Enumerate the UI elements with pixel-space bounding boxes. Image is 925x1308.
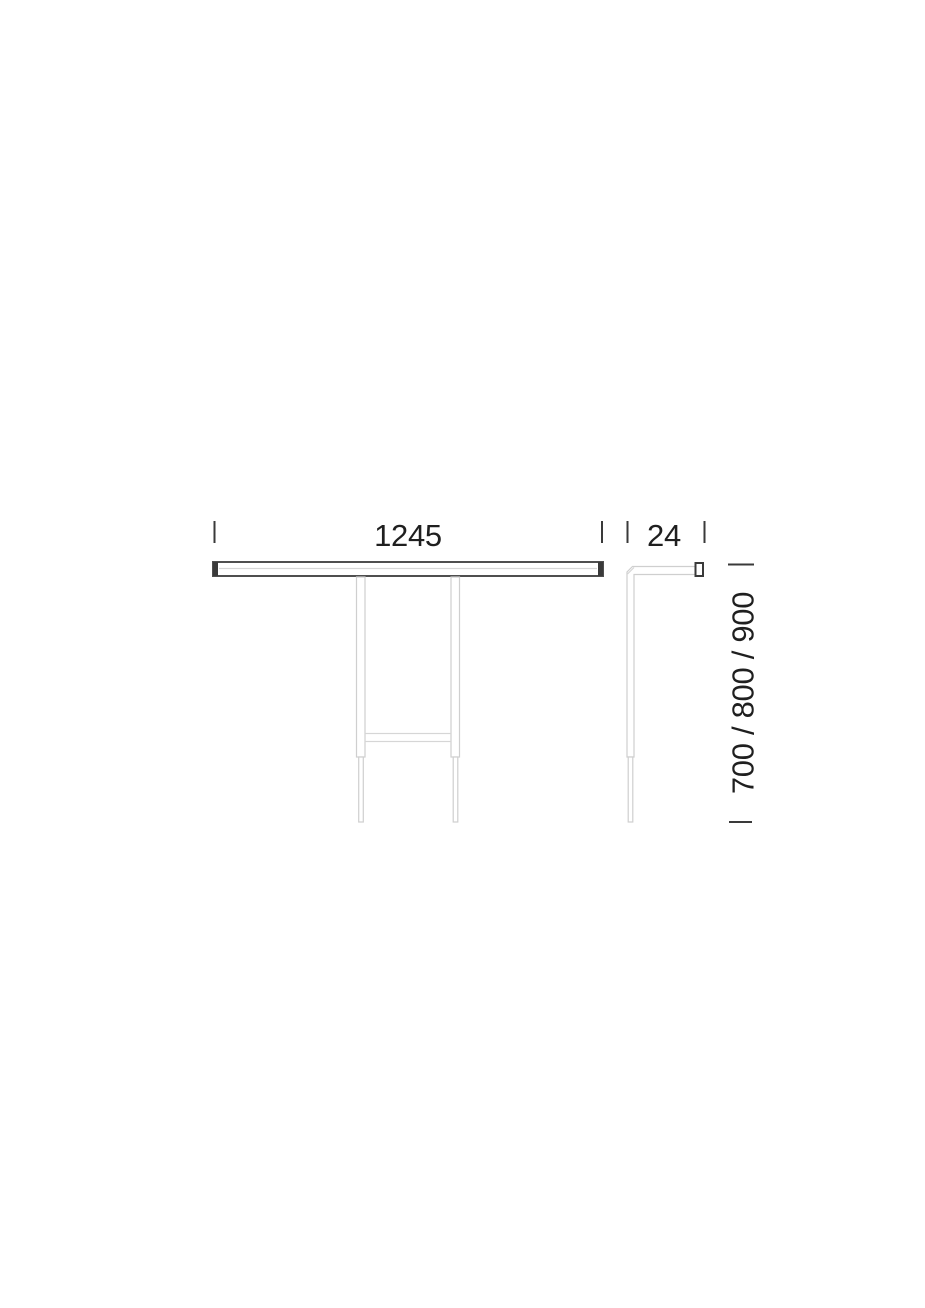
front-tabletop-end-cap-right <box>598 562 603 576</box>
side-tabletop-end-cap <box>696 563 704 576</box>
front-view <box>213 562 603 822</box>
height-dimension: 700 / 800 / 900 <box>726 565 761 823</box>
width-dimension: 1245 <box>215 518 603 553</box>
front-right-leg-lower <box>453 757 458 822</box>
technical-drawing-canvas: 1245 24 700 / 800 / 900 <box>0 0 925 1308</box>
front-stretcher <box>365 734 451 742</box>
side-view <box>627 563 703 822</box>
depth-dim-label: 24 <box>647 518 681 553</box>
dimension-drawing: 1245 24 700 / 800 / 900 <box>0 0 925 1308</box>
front-left-leg-upper <box>357 577 366 757</box>
width-dim-label: 1245 <box>374 518 442 553</box>
front-left-leg-lower <box>359 757 364 822</box>
height-dim-label: 700 / 800 / 900 <box>726 592 761 794</box>
side-leg-lower <box>628 757 633 822</box>
side-leg-and-top-profile <box>627 567 696 758</box>
depth-dimension: 24 <box>628 518 705 553</box>
front-right-leg-upper <box>451 577 460 757</box>
front-tabletop-end-cap-left <box>213 562 218 576</box>
